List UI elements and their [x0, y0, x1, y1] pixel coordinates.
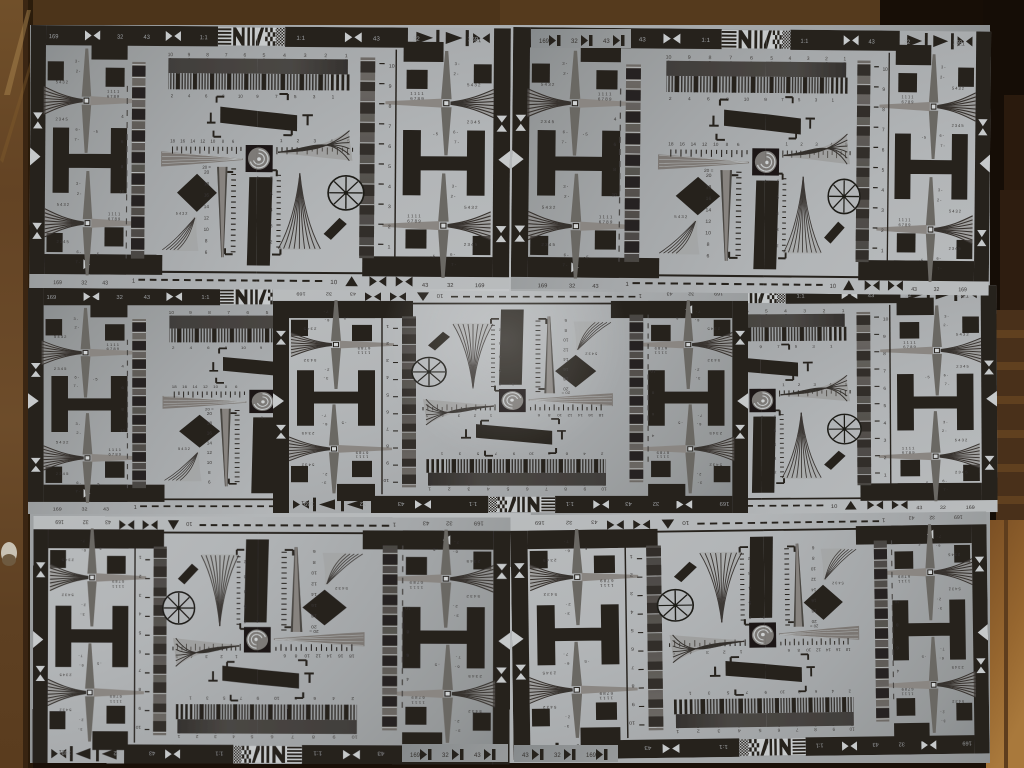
svg-text:169: 169: [586, 753, 597, 759]
svg-text:32: 32: [571, 39, 578, 45]
svg-text:169: 169: [410, 753, 421, 759]
svg-text:32: 32: [554, 753, 561, 759]
svg-text:169: 169: [539, 39, 550, 45]
svg-text:43: 43: [522, 753, 529, 759]
svg-text:32: 32: [442, 753, 449, 759]
svg-text:43: 43: [603, 39, 610, 45]
svg-text:43: 43: [474, 753, 481, 759]
